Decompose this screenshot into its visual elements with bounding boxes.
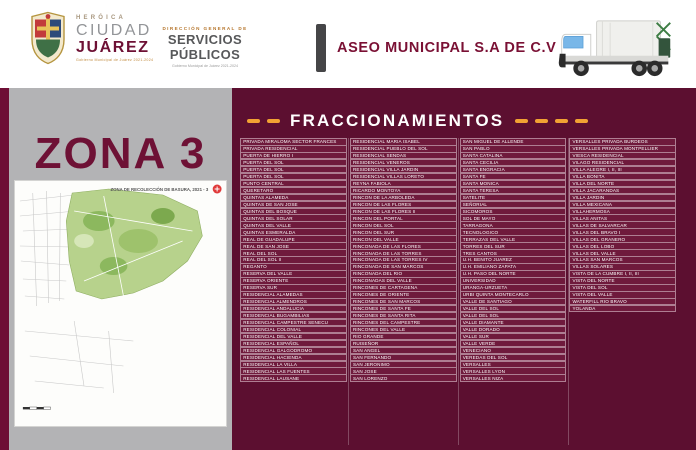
body: ZONA 3	[0, 88, 696, 450]
direction-title: SERVICIOS PÚBLICOS	[138, 32, 272, 62]
fraccionamiento-item: VERSALLES NIZA	[460, 374, 567, 382]
fraccionamientos-section: FRACCIONAMIENTOS PRIVADA MIRALOMA SECTOR…	[232, 88, 696, 450]
column-separator	[458, 138, 459, 445]
header: HERÓICA CIUDAD JUÁREZ Gobierno Municipal…	[0, 0, 696, 88]
column-separator	[348, 138, 349, 445]
fraccionamientos-title: FRACCIONAMIENTOS	[290, 111, 504, 131]
map-graphic: ZONA DE RECOLECCIÓN DE BASURA, 2021 - 3	[15, 181, 226, 426]
fraccionamientos-column-3: SAN MIGUEL DE ALLENDESAN PABLOSANTA CATA…	[460, 138, 567, 382]
dash-decoration	[575, 119, 588, 123]
column-separator	[568, 138, 569, 445]
fraccionamiento-item: RESIDENCIAL LAUSANE	[240, 374, 347, 382]
direction-overline: DIRECCIÓN GENERAL DE	[138, 26, 272, 31]
poster-page: HERÓICA CIUDAD JUÁREZ Gobierno Municipal…	[0, 0, 696, 450]
fraccionamiento-item: SAN LORENZO	[350, 374, 457, 382]
dash-decoration	[535, 119, 548, 123]
fraccionamientos-column-4: VERSALLES PRIVADA BURDEOSVERSALLES PRIVA…	[569, 138, 676, 382]
brand-heroica: HERÓICA	[76, 15, 153, 21]
dash-decoration	[247, 119, 260, 123]
left-accent-strip	[0, 88, 9, 450]
dash-decoration	[555, 119, 568, 123]
company-block: ASEO MUNICIPAL S.A DE C.V	[316, 24, 556, 72]
garbage-truck-icon	[552, 12, 678, 82]
fraccionamientos-column-2: RESIDENCIAL MARIA ISABELRESIDENCIAL PUEB…	[350, 138, 457, 382]
company-name: ASEO MUNICIPAL S.A DE C.V	[337, 40, 556, 56]
vertical-bar-decoration	[316, 24, 326, 72]
direction-tagline: Gobierno Municipal de Juárez 2021-2024	[138, 64, 272, 68]
map-scale-bar	[23, 407, 51, 409]
zone-map: ZONA DE RECOLECCIÓN DE BASURA, 2021 - 3	[14, 180, 227, 427]
direction-block: DIRECCIÓN GENERAL DE SERVICIOS PÚBLICOS …	[138, 26, 272, 68]
dash-decoration	[267, 119, 280, 123]
dash-decoration	[515, 119, 528, 123]
fraccionamientos-column-1: PRIVADA MIRALOMA SECTOR FRANCESPRIVADA R…	[240, 138, 347, 382]
map-logo-icon	[213, 185, 222, 194]
zone-panel: ZONA 3	[9, 88, 232, 450]
map-title: ZONA DE RECOLECCIÓN DE BASURA, 2021 - 3	[111, 187, 209, 192]
city-crest-icon	[28, 10, 68, 66]
zone-title: ZONA 3	[9, 132, 232, 176]
fraccionamientos-header: FRACCIONAMIENTOS	[243, 111, 591, 131]
fraccionamiento-item: YOLANDA	[569, 305, 676, 313]
